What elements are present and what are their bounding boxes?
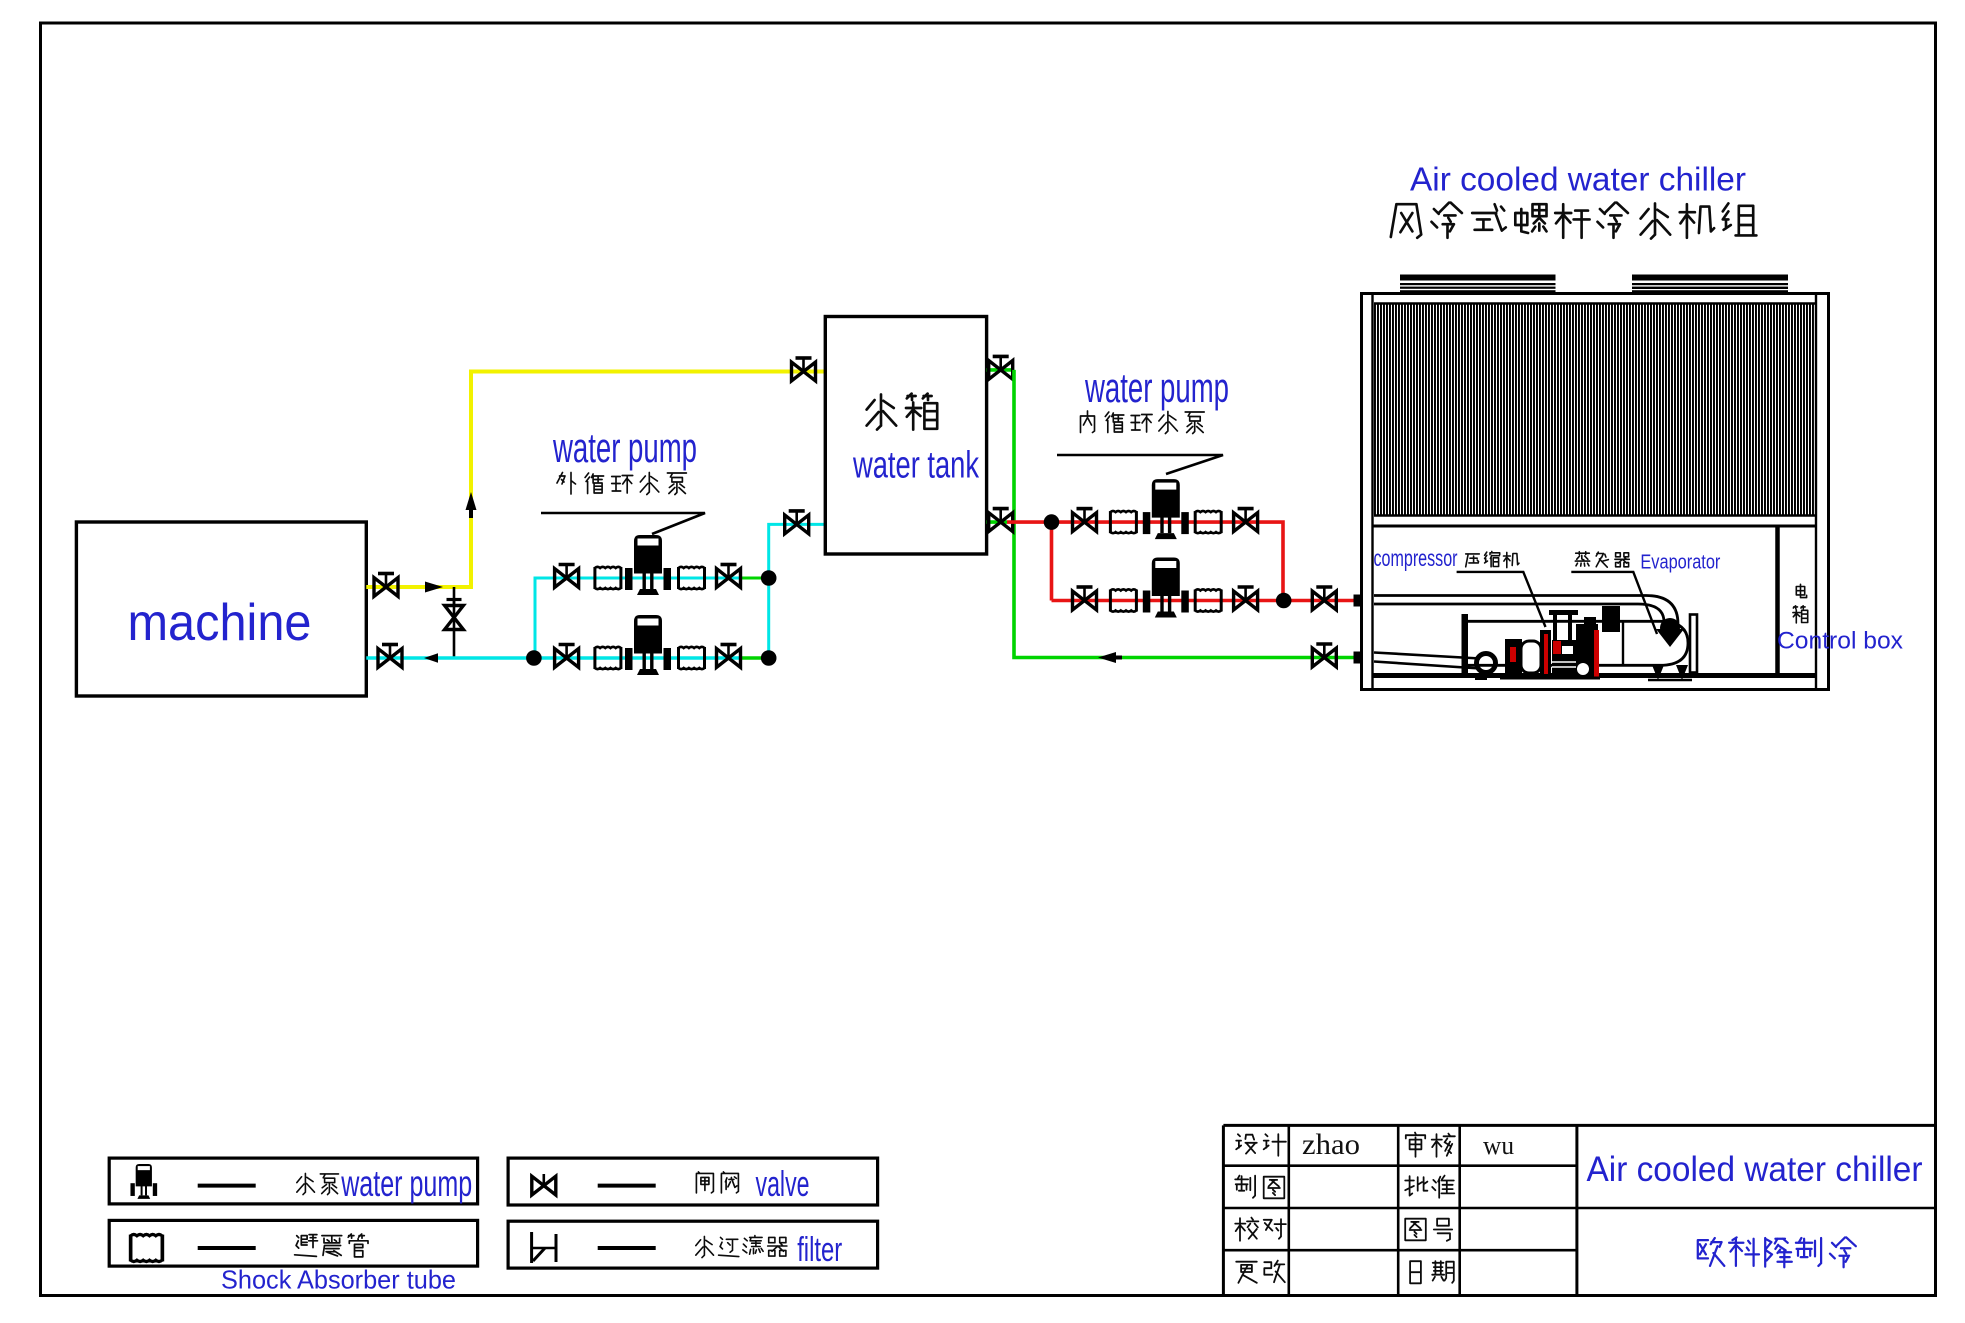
- svg-text:compressor: compressor: [1374, 545, 1458, 571]
- svg-text:water pump: water pump: [552, 424, 697, 471]
- svg-text:Air cooled water chiller: Air cooled water chiller: [1410, 161, 1746, 198]
- svg-text:water pump: water pump: [1084, 364, 1229, 411]
- svg-text:Evaporator: Evaporator: [1640, 551, 1720, 573]
- svg-text:Control box: Control box: [1777, 628, 1903, 655]
- svg-text:Air cooled water chiller: Air cooled water chiller: [1587, 1150, 1923, 1189]
- svg-text:valve: valve: [756, 1163, 810, 1204]
- svg-text:water tank: water tank: [852, 445, 979, 487]
- svg-text:zhao: zhao: [1302, 1128, 1360, 1161]
- svg-text:Shock Absorber tube: Shock Absorber tube: [221, 1264, 456, 1294]
- svg-text:wu: wu: [1483, 1131, 1514, 1160]
- svg-text:water pump: water pump: [341, 1163, 473, 1204]
- svg-text:filter: filter: [797, 1231, 842, 1269]
- svg-text:machine: machine: [128, 594, 312, 652]
